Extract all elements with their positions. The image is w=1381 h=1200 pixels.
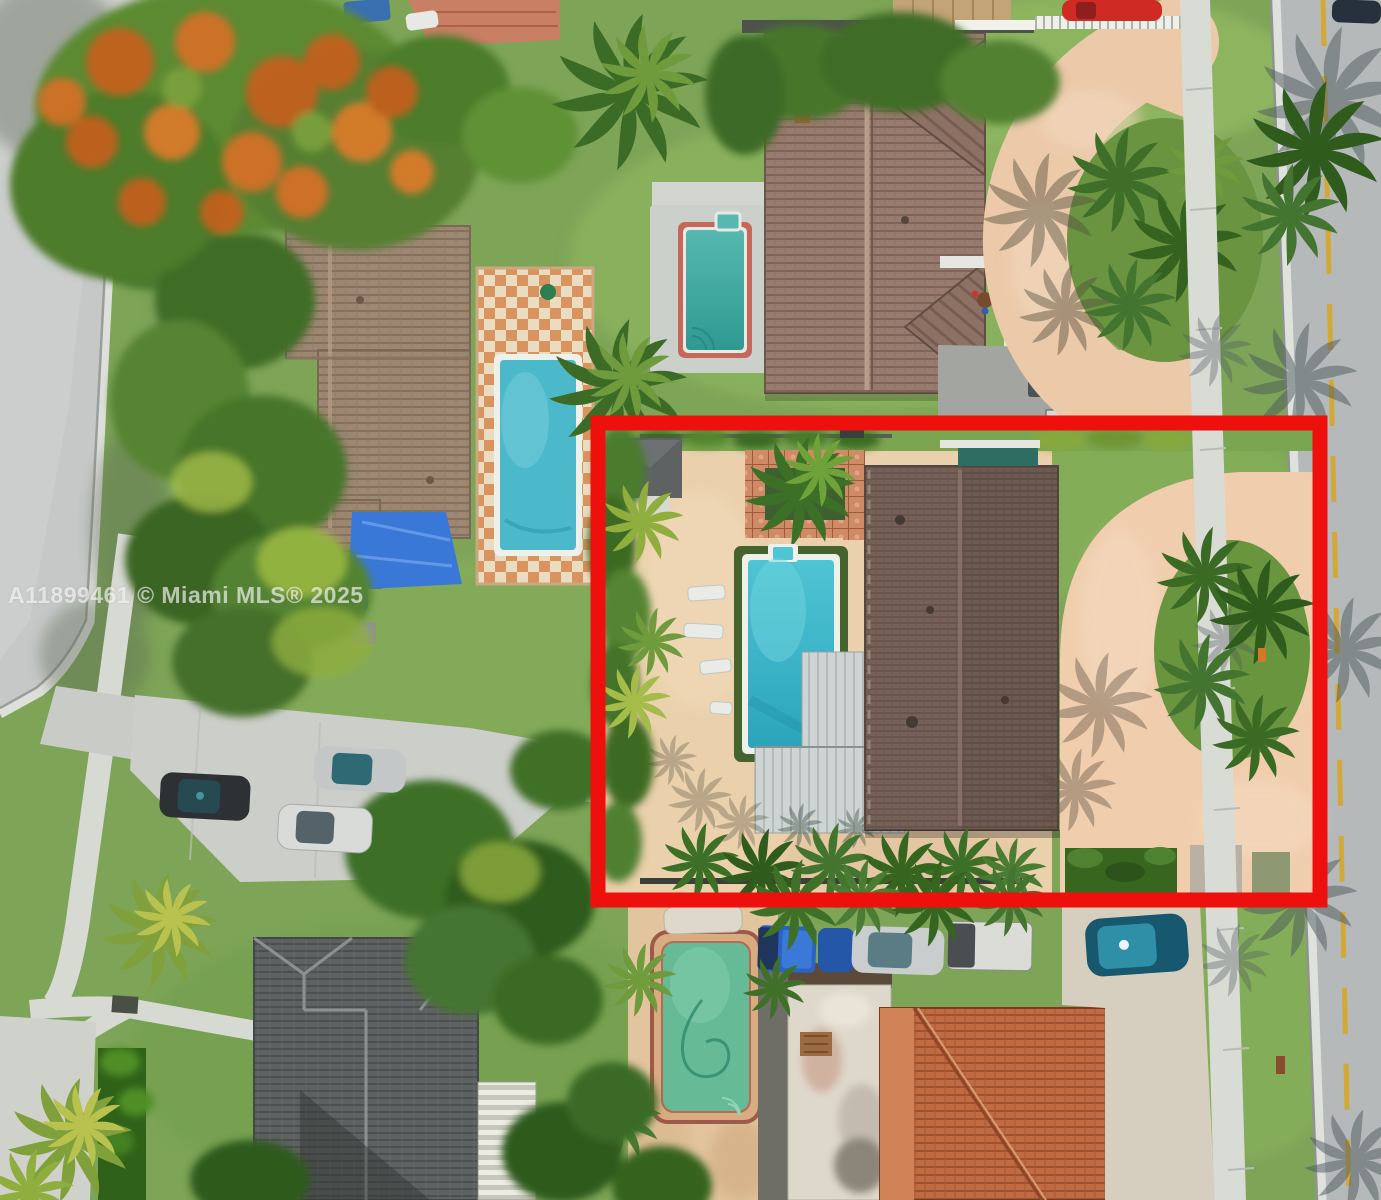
mailbox xyxy=(1276,1056,1285,1074)
white-minivan xyxy=(277,804,373,854)
dark-suv xyxy=(159,772,251,822)
neighbor-pool xyxy=(494,354,582,556)
utility-pad xyxy=(111,995,138,1014)
white-flat-roof-building xyxy=(788,962,892,1200)
screen-enclosure xyxy=(958,448,1038,466)
orange-tile-roof-house xyxy=(880,1008,1106,1200)
small-pool xyxy=(678,213,752,358)
aerial-photo: A11899461 © Miami MLS® 2025 xyxy=(0,0,1381,1200)
subject-house-roof xyxy=(865,440,1060,838)
blue-sedan xyxy=(818,928,854,972)
white-trailer xyxy=(664,905,743,935)
patio-item xyxy=(540,284,556,300)
aerial-scene xyxy=(0,0,1381,1200)
parked-vehicle-row xyxy=(757,921,1032,975)
bottom-pool xyxy=(652,932,760,1122)
dark-car xyxy=(1332,0,1381,24)
white-pickup xyxy=(948,921,1033,970)
silver-car-teal-glass xyxy=(313,746,407,794)
teal-hatchback xyxy=(1084,913,1190,978)
